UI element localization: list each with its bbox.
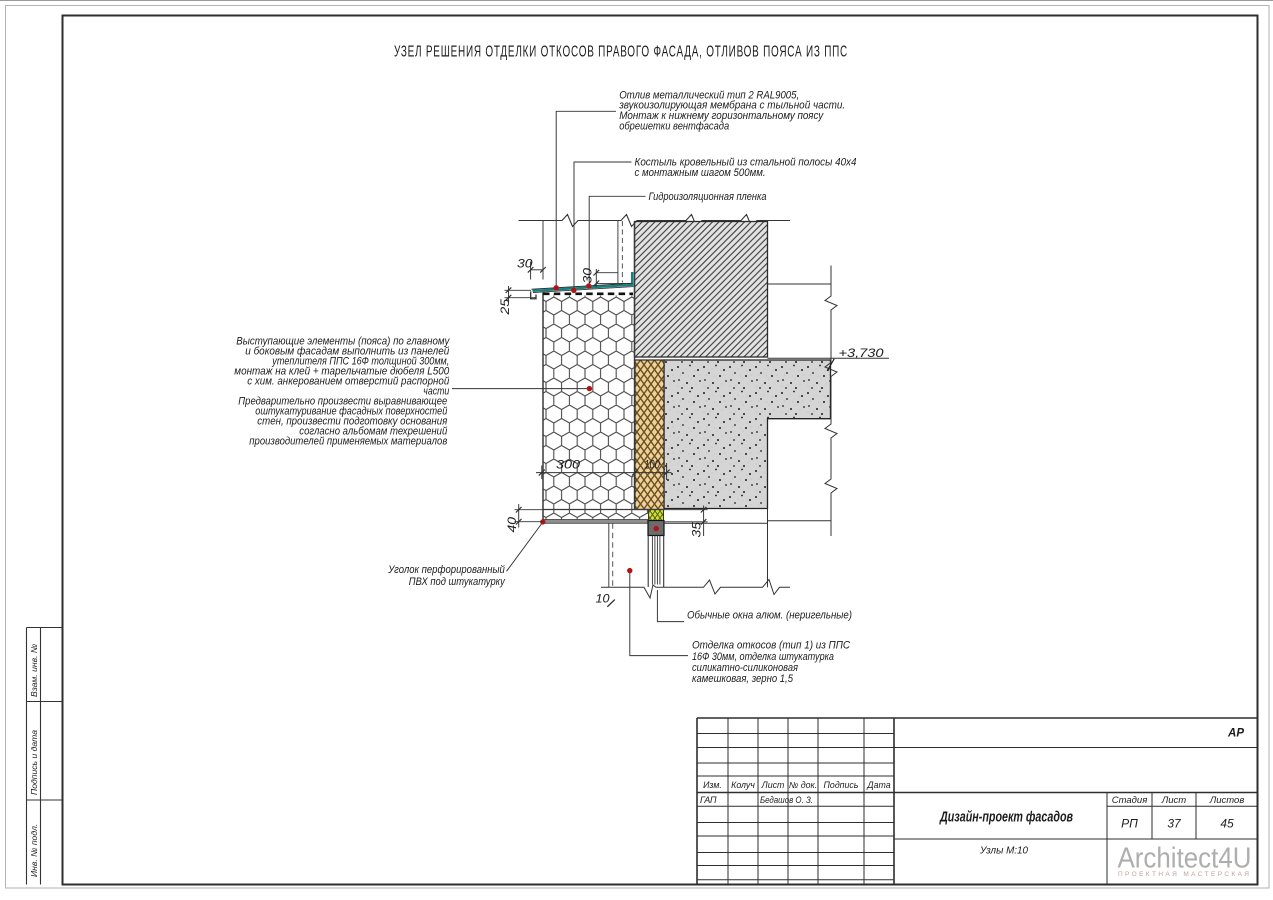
svg-text:Листов: Листов bbox=[1209, 795, 1245, 806]
svg-text:16Ф 30мм, отделка штукатурка: 16Ф 30мм, отделка штукатурка bbox=[692, 651, 834, 663]
svg-text:Взам. инв. №: Взам. инв. № bbox=[29, 644, 39, 697]
svg-text:45: 45 bbox=[1220, 817, 1234, 831]
svg-text:ПВХ под штукатурку: ПВХ под штукатурку bbox=[409, 576, 506, 588]
svg-text:Бедашов О. З.: Бедашов О. З. bbox=[760, 795, 813, 805]
svg-text:Уголок перфорированный: Уголок перфорированный bbox=[387, 564, 504, 576]
svg-text:Обычные окна алюм. (неригельны: Обычные окна алюм. (неригельные) bbox=[687, 610, 852, 622]
svg-text:УЗЕЛ РЕШЕНИЯ ОТДЕЛКИ ОТКОСОВ П: УЗЕЛ РЕШЕНИЯ ОТДЕЛКИ ОТКОСОВ ПРАВОГО ФАС… bbox=[394, 44, 848, 61]
svg-text:Architect4U: Architect4U bbox=[1118, 843, 1252, 875]
svg-text:АР: АР bbox=[1227, 726, 1245, 740]
svg-text:с монтажным шагом 500мм.: с монтажным шагом 500мм. bbox=[635, 167, 766, 179]
svg-text:Дизайн-проект фасадов: Дизайн-проект фасадов bbox=[939, 810, 1074, 826]
svg-text:производителей применяемых мат: производителей применяемых материалов bbox=[249, 436, 447, 448]
svg-text:Отделка откосов (тип 1) из ППС: Отделка откосов (тип 1) из ППС bbox=[692, 640, 850, 652]
svg-text:35: 35 bbox=[690, 522, 704, 538]
svg-text:25: 25 bbox=[498, 299, 512, 316]
svg-text:37: 37 bbox=[1167, 817, 1182, 831]
svg-text:№ док.: № док. bbox=[789, 780, 817, 790]
svg-text:ГАП: ГАП bbox=[700, 795, 717, 805]
svg-text:Инв. № подл.: Инв. № подл. bbox=[29, 824, 39, 877]
svg-text:Подпись и дата: Подпись и дата bbox=[29, 730, 39, 795]
svg-text:Лист: Лист bbox=[1161, 795, 1187, 806]
svg-text:100: 100 bbox=[644, 458, 660, 472]
svg-text:300: 300 bbox=[556, 458, 580, 472]
svg-text:Стадия: Стадия bbox=[1112, 795, 1148, 806]
svg-text:+3,730: +3,730 bbox=[839, 346, 884, 360]
svg-text:30: 30 bbox=[517, 256, 533, 270]
svg-text:РП: РП bbox=[1121, 817, 1138, 831]
svg-text:Колуч: Колуч bbox=[731, 780, 755, 790]
svg-text:камешковая, зерно 1,5: камешковая, зерно 1,5 bbox=[692, 673, 794, 685]
svg-text:40: 40 bbox=[505, 517, 519, 533]
svg-text:Подпись: Подпись bbox=[824, 780, 859, 790]
svg-text:Лист: Лист bbox=[761, 780, 785, 790]
svg-text:Изм.: Изм. bbox=[703, 780, 722, 790]
svg-text:Узлы М:10: Узлы М:10 bbox=[979, 845, 1028, 857]
svg-text:обрешетки вентфасада: обрешетки вентфасада bbox=[619, 121, 729, 133]
svg-text:Гидроизоляционная пленка: Гидроизоляционная пленка bbox=[649, 191, 767, 203]
svg-text:с хим. анкерованием отверстий: с хим. анкерованием отверстий распорной bbox=[247, 376, 449, 388]
svg-text:Дата: Дата bbox=[866, 780, 890, 790]
svg-text:10: 10 bbox=[596, 592, 610, 606]
svg-text:30: 30 bbox=[581, 268, 595, 284]
svg-text:силикатно-силиконовая: силикатно-силиконовая bbox=[692, 662, 798, 674]
